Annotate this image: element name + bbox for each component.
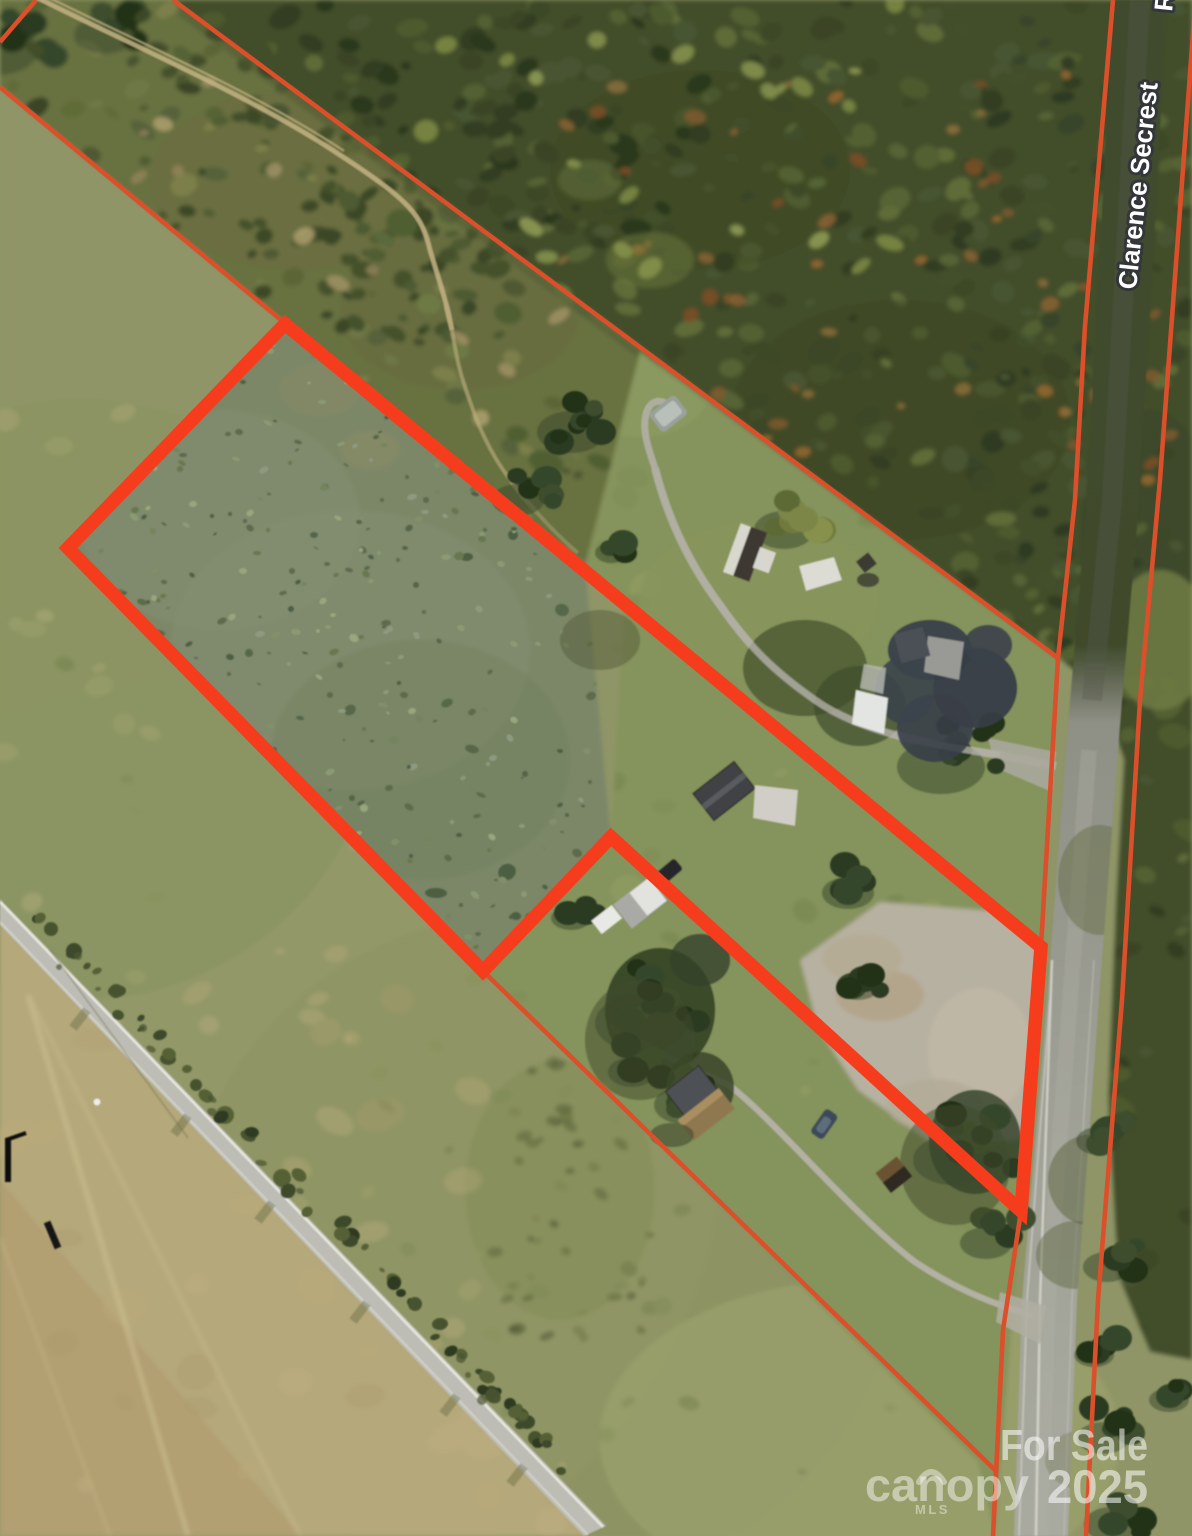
svg-text:Rd: Rd: [1148, 0, 1181, 13]
svg-text:2025: 2025: [1047, 1460, 1148, 1513]
svg-text:MLS: MLS: [915, 1502, 950, 1517]
